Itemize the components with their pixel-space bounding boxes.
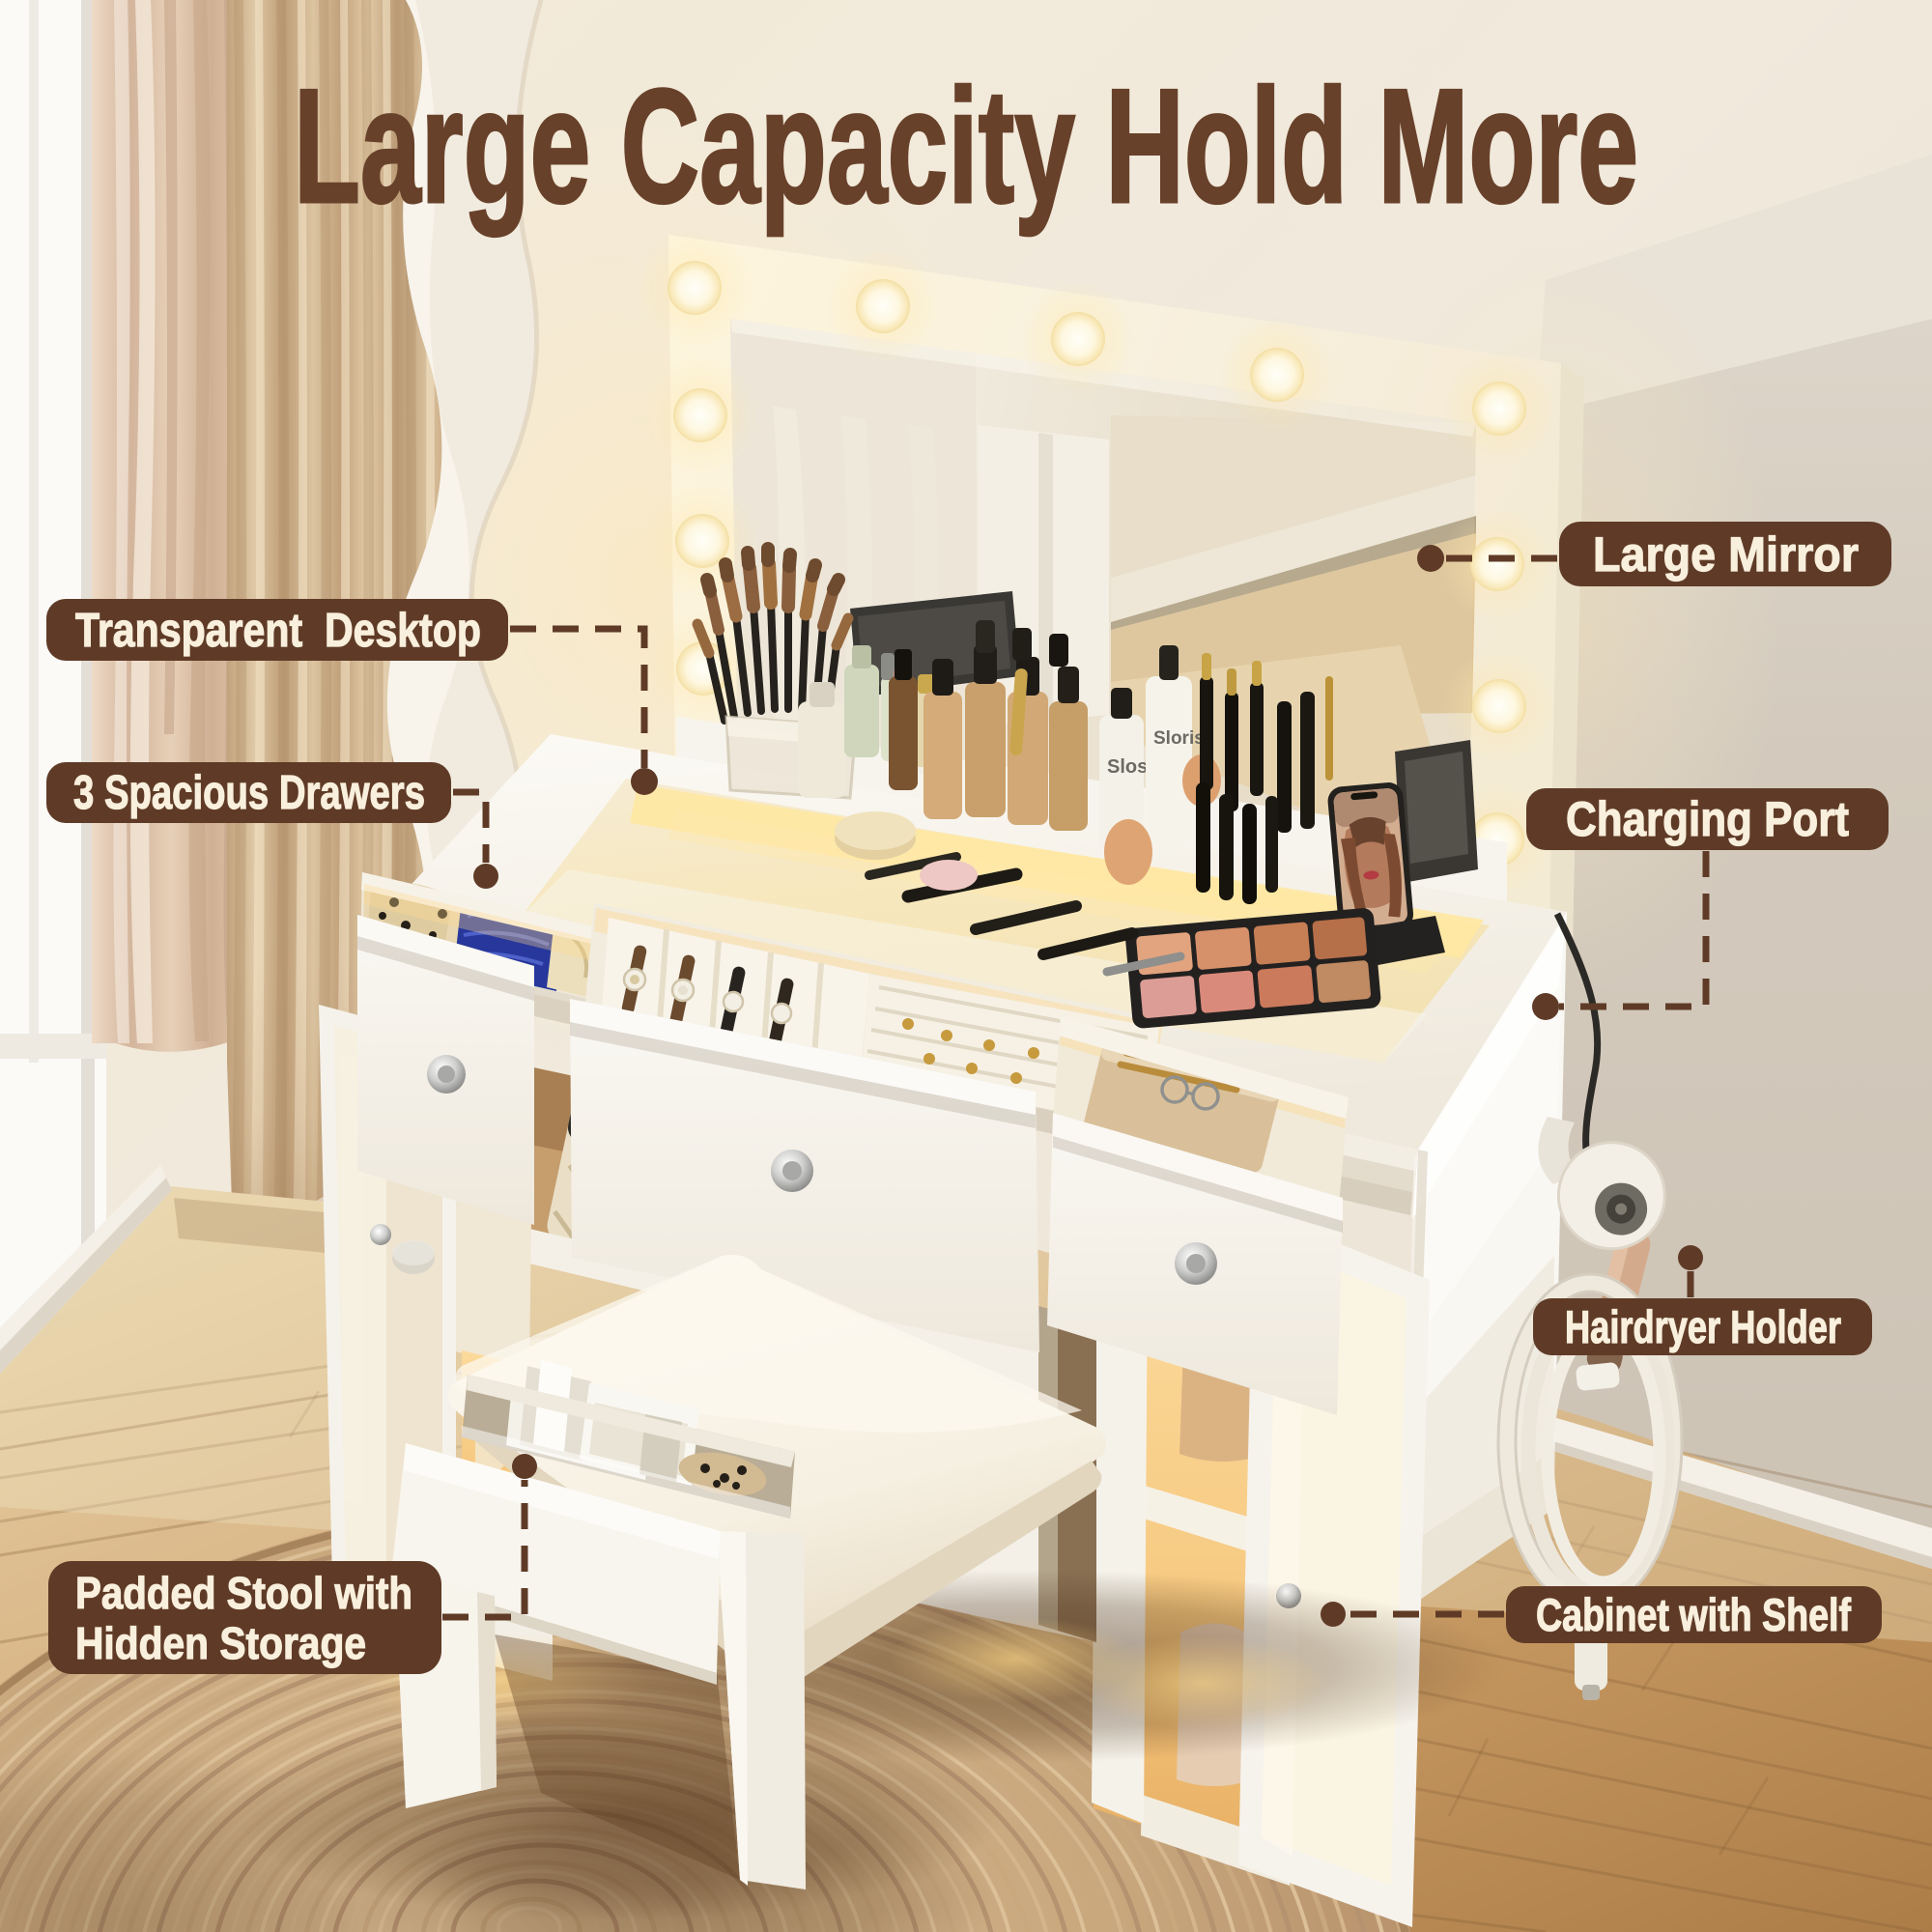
- svg-text:Hairdryer Holder: Hairdryer Holder: [1565, 1301, 1841, 1352]
- svg-text:Charging Port: Charging Port: [1566, 792, 1849, 846]
- svg-text:Padded Stool with: Padded Stool with: [75, 1568, 412, 1618]
- svg-text:Sloris: Sloris: [1153, 728, 1205, 749]
- svg-text:Transparent Desktop: Transparent Desktop: [75, 605, 481, 657]
- svg-text:3 Spacious Drawers: 3 Spacious Drawers: [73, 767, 425, 819]
- svg-text:Cabinet with Shelf: Cabinet with Shelf: [1536, 1589, 1851, 1640]
- svg-text:Large Mirror: Large Mirror: [1593, 527, 1859, 582]
- svg-text:Large Capacity Hold More: Large Capacity Hold More: [294, 55, 1638, 237]
- svg-text:Hidden Storage: Hidden Storage: [75, 1618, 366, 1668]
